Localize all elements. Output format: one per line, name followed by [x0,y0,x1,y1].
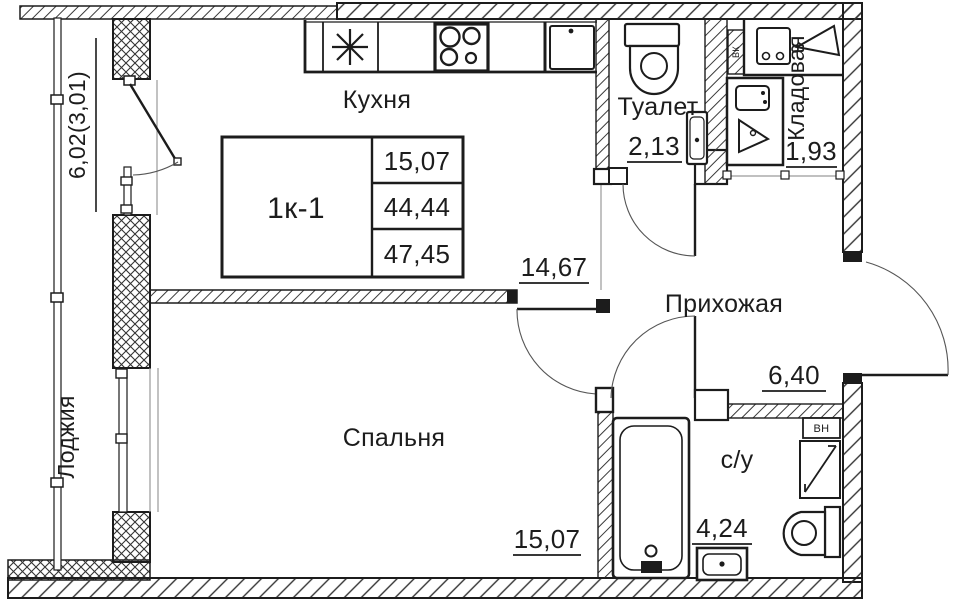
bedroom-door-arc [517,309,596,394]
kitchen-label: Кухня [343,86,411,114]
hallway-area: 6,40 [768,360,820,390]
bedroom-window-mullion-1 [116,369,127,378]
bedroom-door-jamb [596,299,610,313]
loggia-top-wall [20,6,337,19]
balcony-door-frame-top [124,76,135,85]
living-area-value: 15,07 [384,146,451,176]
bathroom-fixtures: ВН [613,418,840,580]
loggia-label: Лоджия [53,395,79,478]
floor-plan-drawing: ВН 1к-1 15,07 44,44 47,45 Кухня 14,67 Сп… [0,0,954,600]
bedroom-label: Спальня [343,424,446,452]
kitchen-toilet-wall [596,19,609,171]
pier-bottom [113,512,150,562]
fridge-icon [332,29,368,65]
entrance-door-arc [866,262,948,375]
entrance-jamb-top [843,252,862,262]
pier-middle [113,215,150,368]
hall-bathroom-wall [728,404,843,418]
vent-shaft-label: ВН [814,423,830,435]
kitchen-counter [305,20,597,72]
total-area-value: 47,45 [384,239,451,269]
bathtub-icon [613,418,689,578]
bedroom-window [116,368,158,512]
storage-track-stop-1 [723,171,731,179]
kitchen-bedroom-wall-cap [507,290,517,303]
toilet-door-arc [623,184,695,256]
entrance-door [862,262,948,375]
bathroom-washbasin-icon [697,548,747,580]
bedroom-area: 15,07 [514,524,581,554]
wardrobe-shelf-icon [736,86,769,110]
kitchen-bedroom-wall [150,290,517,303]
vent-label-block: ВН [803,418,840,438]
kitchen-sink-icon [545,22,594,72]
balcony-door-arc [133,162,178,175]
balcony-door [121,76,181,215]
bedroom-window-mullion-2 [116,434,127,443]
sidelight-mullion-1 [121,177,132,185]
loggia-dimension: 6,02(3,01) [64,71,90,179]
glazing-mullion-2 [51,293,63,302]
toilet-label: Туалет [618,93,699,121]
right-wall-upper [843,3,862,252]
glazing-mullion-1 [51,95,63,104]
storage-area: 1,93 [785,136,837,166]
pier-top [113,19,150,79]
bathroom-door-jamb-left [596,388,613,412]
kitchen-area: 14,67 [521,252,588,282]
info-table: 1к-1 15,07 44,44 47,45 [222,137,463,277]
apartment-area-value: 44,44 [384,192,451,222]
toilet-right-wall [705,19,727,184]
bathroom-wc-icon [784,507,840,557]
wc-tank [625,24,679,46]
balcony-door-leaf [130,84,177,162]
toilet-wall-left [609,168,627,184]
right-wall-lower [843,383,862,582]
storage-track-stop-2 [781,171,789,179]
unit-type-label: 1к-1 [267,192,325,225]
floor-plan: ВН 1к-1 15,07 44,44 47,45 Кухня 14,67 Сп… [0,0,954,600]
storage-track-stop-3 [836,171,844,179]
entrance-jamb-bottom [843,373,862,383]
hallway-label: Прихожая [665,290,783,318]
vent-shaft [800,441,840,498]
bathroom-door-arc [611,316,695,398]
top-wall [337,3,862,19]
bathroom-door-pier [695,390,728,420]
bathroom-area: 4,24 [696,513,748,543]
stove-icon [435,24,488,71]
loggia-glazing [51,18,63,570]
vent-channel-label: ВК [731,46,741,58]
toilet-area: 2,13 [628,131,680,161]
sidelight-mullion-2 [121,205,132,213]
storage-label: Кладовая [783,35,809,140]
bathroom-label: с/у [721,446,754,474]
bedroom-bathroom-wall [598,390,613,578]
